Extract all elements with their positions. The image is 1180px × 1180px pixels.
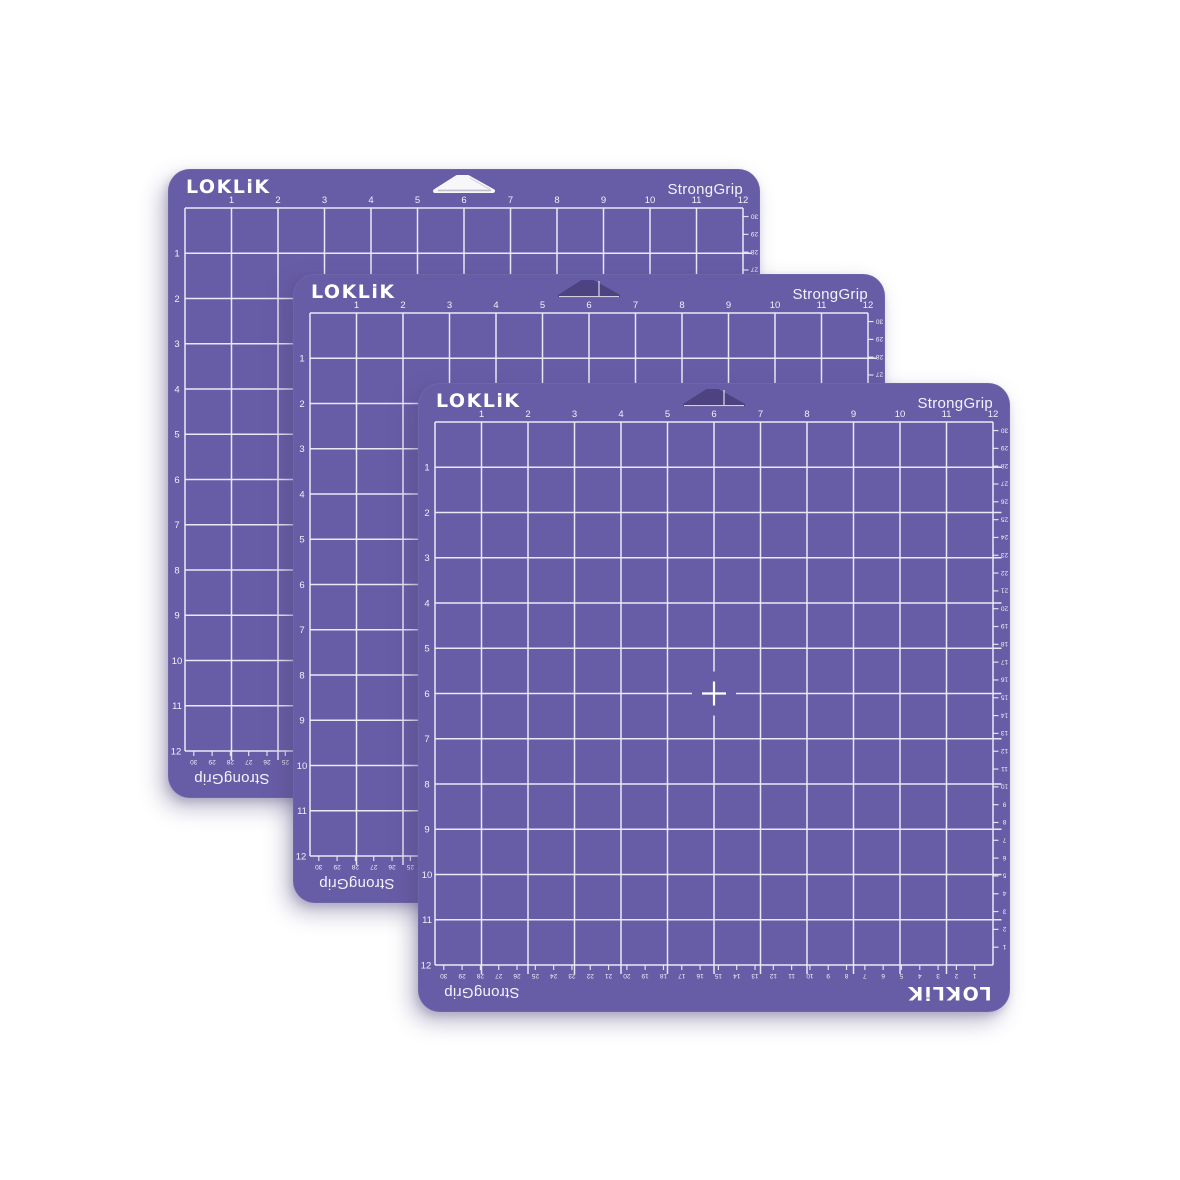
svg-text:4: 4 [618, 409, 623, 420]
svg-text:29: 29 [208, 758, 216, 765]
svg-text:29: 29 [333, 863, 341, 870]
svg-text:6: 6 [461, 195, 466, 206]
svg-text:22: 22 [586, 972, 594, 979]
svg-text:30: 30 [190, 758, 198, 765]
product-image: 1234567891011121234567891011123029282726… [0, 0, 1180, 1180]
svg-text:28: 28 [351, 863, 359, 870]
svg-text:19: 19 [641, 972, 649, 979]
hanger-notch-icon [682, 388, 746, 407]
svg-text:12: 12 [769, 972, 777, 979]
svg-text:25: 25 [281, 758, 289, 765]
svg-text:17: 17 [678, 972, 686, 979]
svg-text:6: 6 [1002, 854, 1006, 861]
svg-text:8: 8 [844, 972, 848, 979]
svg-text:3: 3 [174, 339, 179, 350]
svg-text:7: 7 [633, 300, 638, 311]
svg-text:5: 5 [415, 195, 420, 206]
svg-text:30: 30 [440, 972, 448, 979]
svg-text:7: 7 [863, 972, 867, 979]
svg-text:28: 28 [876, 353, 884, 360]
svg-text:4: 4 [918, 972, 922, 979]
svg-text:10: 10 [422, 870, 433, 881]
svg-text:14: 14 [1001, 711, 1009, 718]
svg-text:29: 29 [1001, 444, 1009, 451]
svg-text:28: 28 [1001, 462, 1009, 469]
svg-text:20: 20 [1001, 604, 1009, 611]
svg-text:25: 25 [406, 863, 414, 870]
svg-text:14: 14 [733, 972, 741, 979]
svg-text:5: 5 [174, 430, 179, 441]
svg-text:3: 3 [936, 972, 940, 979]
svg-text:28: 28 [751, 248, 759, 255]
svg-text:5: 5 [424, 644, 429, 655]
svg-text:10: 10 [1001, 783, 1009, 790]
svg-text:6: 6 [881, 972, 885, 979]
svg-text:2: 2 [1002, 925, 1006, 932]
svg-text:9: 9 [826, 972, 830, 979]
svg-text:11: 11 [422, 915, 432, 926]
svg-text:21: 21 [1001, 587, 1009, 594]
brand-logo-rotated: LOKLiK [907, 983, 992, 1002]
svg-text:10: 10 [297, 761, 308, 772]
svg-text:18: 18 [659, 972, 667, 979]
grip-label-rotated: StrongGrip [319, 876, 395, 891]
svg-text:16: 16 [696, 972, 704, 979]
svg-text:9: 9 [601, 195, 606, 206]
grip-label-rotated: StrongGrip [194, 771, 270, 786]
svg-text:16: 16 [1001, 676, 1009, 683]
svg-text:4: 4 [1002, 889, 1006, 896]
svg-text:5: 5 [299, 535, 304, 546]
brand-logo: LOKLiK [436, 392, 521, 411]
svg-text:20: 20 [623, 972, 631, 979]
svg-text:13: 13 [751, 972, 759, 979]
svg-text:8: 8 [554, 195, 559, 206]
svg-text:2: 2 [525, 409, 530, 420]
cutting-mat-front: 1234567891011121234567891011123029282726… [418, 383, 1010, 1012]
svg-text:6: 6 [424, 689, 429, 700]
svg-text:11: 11 [297, 806, 307, 817]
brand-logo: LOKLiK [186, 178, 271, 197]
hanger-notch-icon [557, 279, 621, 298]
svg-text:1: 1 [1002, 943, 1006, 950]
svg-text:25: 25 [1001, 515, 1009, 522]
svg-text:6: 6 [299, 580, 304, 591]
svg-text:10: 10 [172, 656, 183, 667]
svg-text:29: 29 [876, 335, 884, 342]
svg-text:3: 3 [322, 195, 327, 206]
svg-text:8: 8 [804, 409, 809, 420]
svg-text:6: 6 [586, 300, 591, 311]
svg-text:27: 27 [495, 972, 503, 979]
svg-text:27: 27 [245, 758, 253, 765]
svg-text:23: 23 [1001, 551, 1009, 558]
svg-text:9: 9 [174, 611, 179, 622]
svg-text:9: 9 [1002, 800, 1006, 807]
svg-text:30: 30 [1001, 426, 1009, 433]
svg-text:4: 4 [174, 384, 179, 395]
svg-text:1: 1 [973, 972, 977, 979]
svg-text:26: 26 [388, 863, 396, 870]
svg-text:22: 22 [1001, 569, 1009, 576]
svg-text:3: 3 [447, 300, 452, 311]
svg-text:6: 6 [174, 475, 179, 486]
svg-text:21: 21 [605, 972, 613, 979]
svg-text:12: 12 [421, 961, 432, 972]
svg-text:2: 2 [174, 294, 179, 305]
svg-text:26: 26 [513, 972, 521, 979]
svg-text:7: 7 [758, 409, 763, 420]
svg-text:7: 7 [508, 195, 513, 206]
svg-text:18: 18 [1001, 640, 1009, 647]
svg-text:13: 13 [1001, 729, 1009, 736]
grip-label: StrongGrip [667, 182, 743, 197]
svg-text:4: 4 [368, 195, 373, 206]
svg-text:4: 4 [424, 598, 429, 609]
svg-text:8: 8 [174, 565, 179, 576]
svg-text:4: 4 [493, 300, 498, 311]
svg-text:19: 19 [1001, 622, 1009, 629]
svg-text:11: 11 [172, 701, 182, 712]
svg-text:3: 3 [299, 444, 304, 455]
svg-text:7: 7 [299, 625, 304, 636]
svg-text:1: 1 [299, 354, 304, 365]
svg-text:2: 2 [400, 300, 405, 311]
svg-text:9: 9 [726, 300, 731, 311]
svg-text:6: 6 [711, 409, 716, 420]
svg-text:5: 5 [540, 300, 545, 311]
svg-text:26: 26 [1001, 498, 1009, 505]
grip-label: StrongGrip [917, 396, 993, 411]
svg-text:8: 8 [299, 670, 304, 681]
svg-text:11: 11 [788, 972, 795, 979]
svg-text:2: 2 [299, 399, 304, 410]
svg-text:8: 8 [1002, 818, 1006, 825]
svg-text:15: 15 [714, 972, 722, 979]
svg-text:3: 3 [424, 553, 429, 564]
svg-text:5: 5 [1002, 872, 1006, 879]
svg-text:8: 8 [424, 779, 429, 790]
svg-text:27: 27 [876, 371, 884, 378]
svg-text:10: 10 [895, 409, 906, 420]
hanger-notch-icon [432, 174, 496, 193]
svg-text:17: 17 [1001, 658, 1009, 665]
brand-logo: LOKLiK [311, 283, 396, 302]
measurement-grid: 1234567891011121234567891011123029282726… [418, 383, 1010, 1012]
svg-text:7: 7 [174, 520, 179, 531]
grip-label-rotated: StrongGrip [444, 985, 520, 1000]
svg-text:5: 5 [665, 409, 670, 420]
svg-text:29: 29 [751, 230, 759, 237]
svg-text:24: 24 [550, 972, 558, 979]
svg-text:27: 27 [1001, 480, 1009, 487]
svg-text:12: 12 [296, 852, 307, 863]
svg-text:2: 2 [954, 972, 958, 979]
svg-text:29: 29 [458, 972, 466, 979]
svg-text:2: 2 [424, 508, 429, 519]
svg-text:9: 9 [851, 409, 856, 420]
svg-text:2: 2 [275, 195, 280, 206]
svg-text:10: 10 [645, 195, 656, 206]
svg-text:3: 3 [1002, 907, 1006, 914]
svg-text:1: 1 [424, 463, 429, 474]
svg-text:12: 12 [1001, 747, 1009, 754]
svg-text:1: 1 [174, 249, 179, 260]
svg-text:25: 25 [531, 972, 539, 979]
svg-text:15: 15 [1001, 693, 1009, 700]
svg-text:28: 28 [226, 758, 234, 765]
svg-text:30: 30 [751, 212, 759, 219]
svg-text:4: 4 [299, 489, 304, 500]
svg-text:27: 27 [751, 266, 759, 273]
grip-label: StrongGrip [792, 287, 868, 302]
svg-text:24: 24 [1001, 533, 1009, 540]
svg-text:9: 9 [424, 825, 429, 836]
svg-text:8: 8 [679, 300, 684, 311]
svg-text:9: 9 [299, 716, 304, 727]
svg-text:30: 30 [876, 317, 884, 324]
svg-text:12: 12 [171, 747, 182, 758]
svg-text:3: 3 [572, 409, 577, 420]
svg-text:27: 27 [370, 863, 378, 870]
svg-text:7: 7 [1002, 836, 1006, 843]
svg-text:7: 7 [424, 734, 429, 745]
svg-text:28: 28 [476, 972, 484, 979]
svg-text:26: 26 [263, 758, 271, 765]
svg-text:30: 30 [315, 863, 323, 870]
svg-text:10: 10 [770, 300, 781, 311]
svg-text:11: 11 [1001, 765, 1008, 772]
